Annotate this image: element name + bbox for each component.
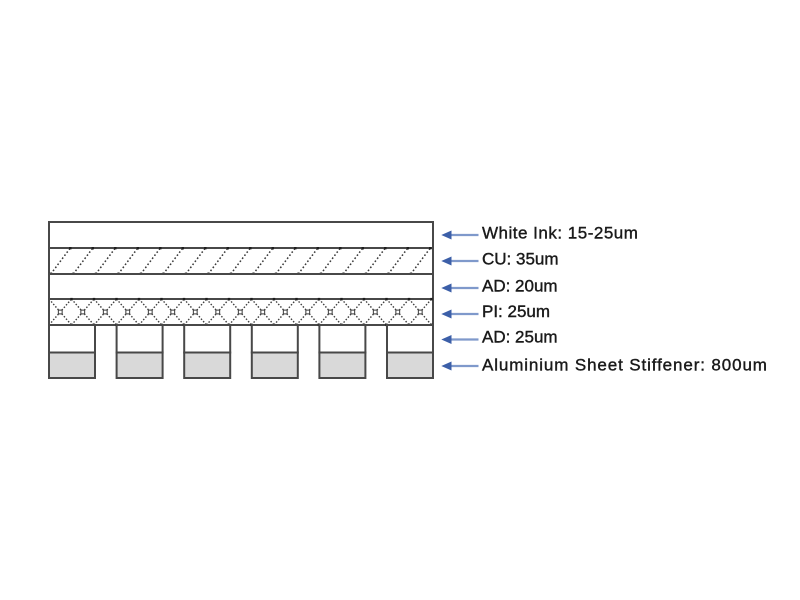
svg-text:Aluminium Sheet Stiffener: 800: Aluminium Sheet Stiffener: 800um <box>482 356 768 375</box>
svg-text:AD: 25um: AD: 25um <box>482 328 558 347</box>
svg-text:CU: 35um: CU: 35um <box>482 250 559 269</box>
svg-text:PI: 25um: PI: 25um <box>482 302 550 321</box>
svg-text:White Ink: 15-25um: White Ink: 15-25um <box>482 224 638 243</box>
svg-text:AD: 20um: AD: 20um <box>482 277 558 296</box>
